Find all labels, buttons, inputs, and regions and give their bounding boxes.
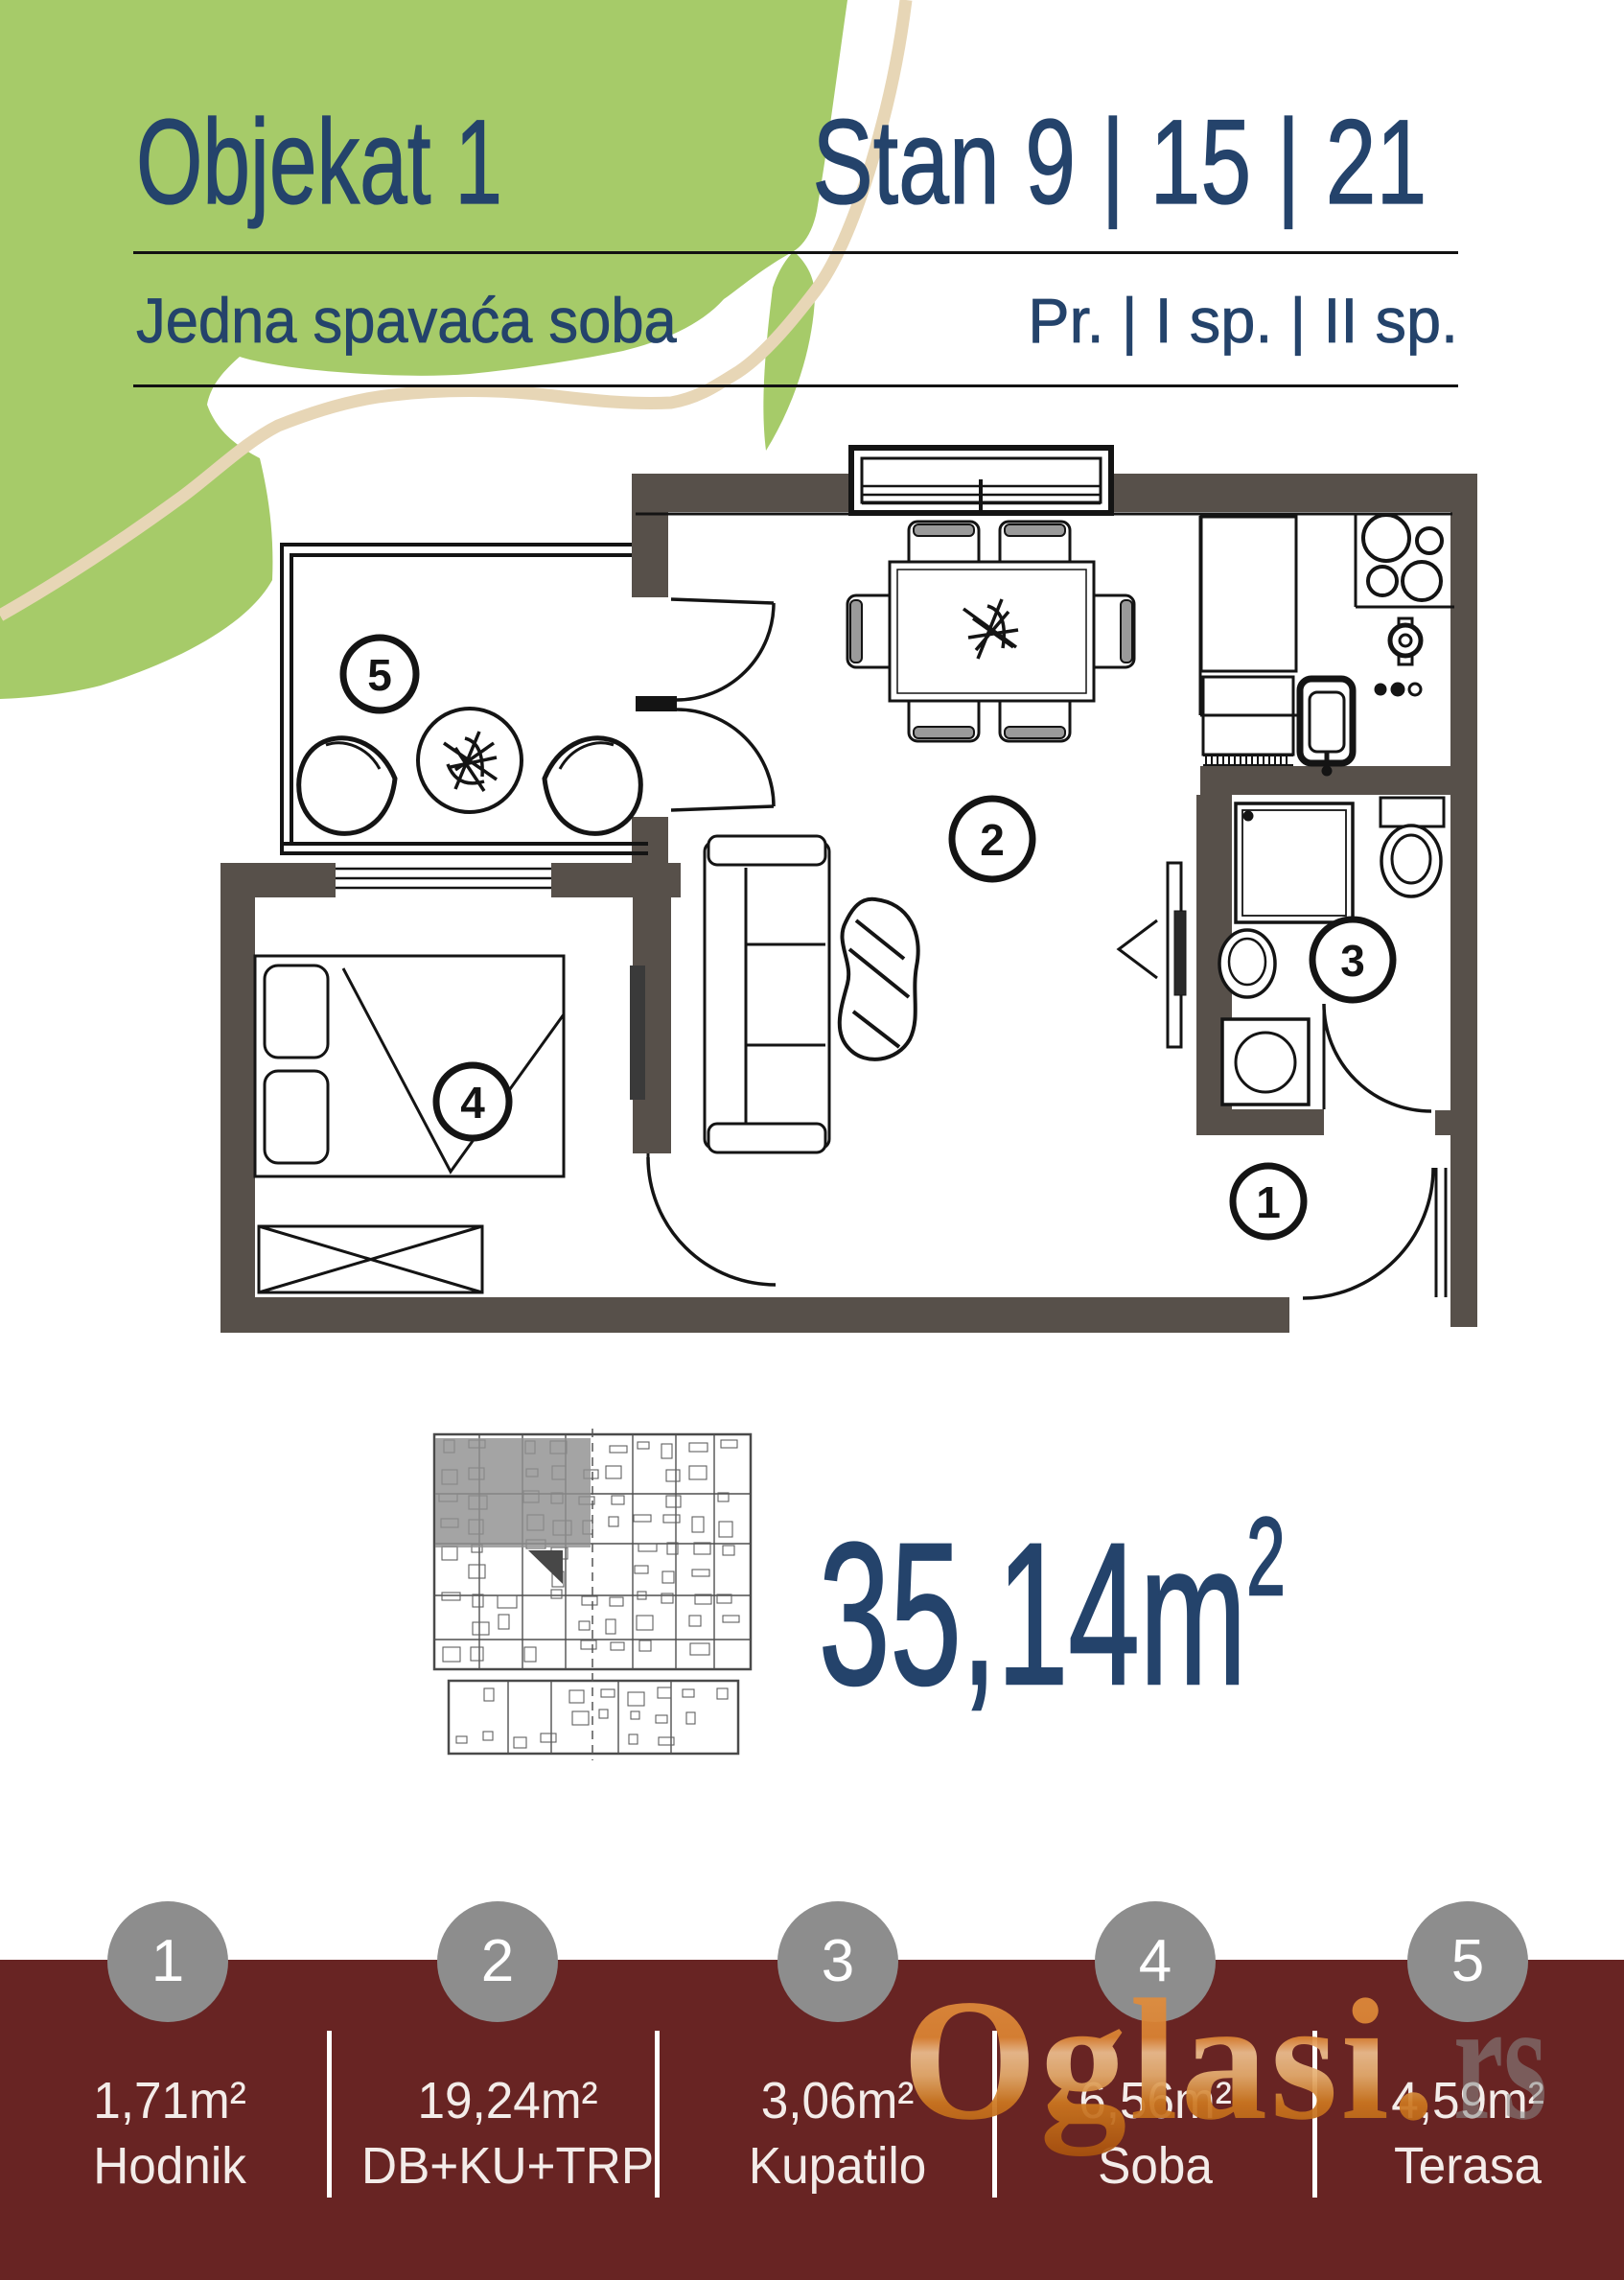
svg-text:rs: rs [1453, 1966, 1547, 2155]
svg-text:Oglasi.: Oglasi. [902, 1965, 1438, 2156]
